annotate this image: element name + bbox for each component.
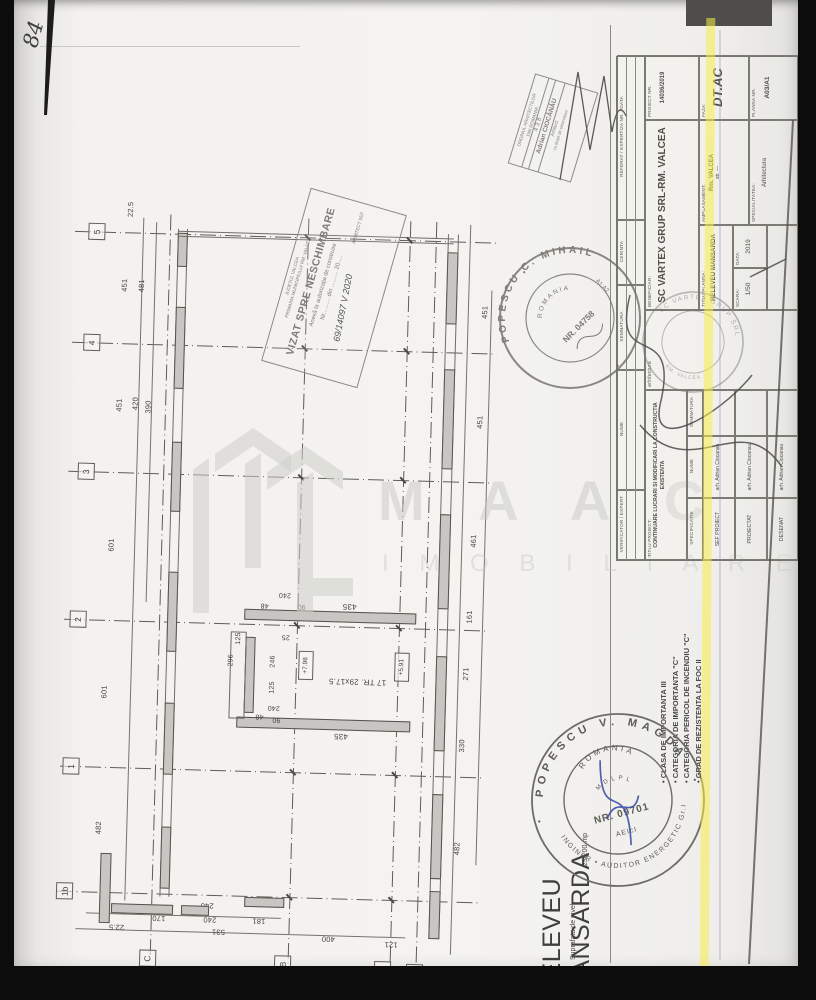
photo-edge-right	[798, 0, 816, 1000]
faint-scan-line	[719, 30, 721, 960]
scanned-architectural-plan: { "page": { "handwritten_number": "84" }…	[0, 0, 816, 1000]
page-edge-curve	[0, 0, 816, 1000]
photo-edge-left	[0, 0, 14, 1000]
photo-edge-bottom	[0, 966, 816, 1000]
photo-shadow-block	[686, 0, 772, 26]
